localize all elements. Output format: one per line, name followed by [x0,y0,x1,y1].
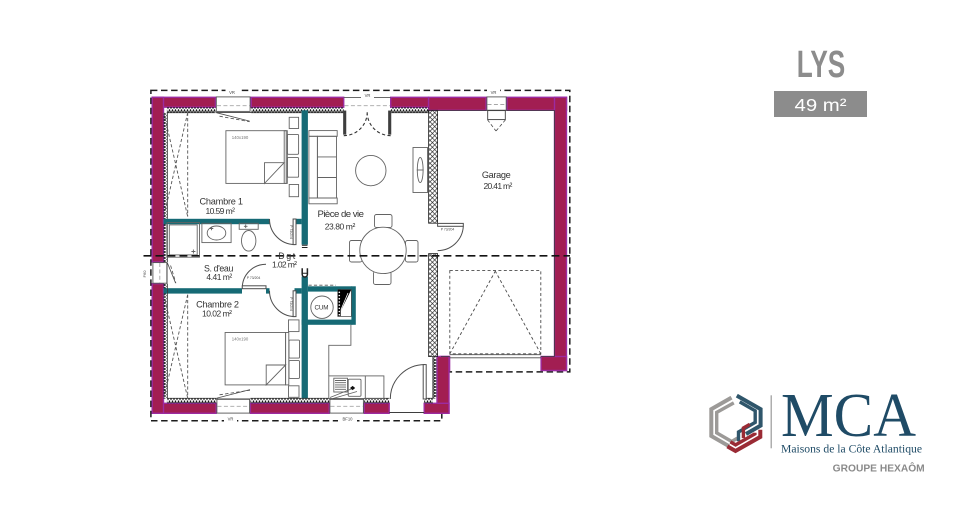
svg-text:MCA: MCA [781,382,916,450]
svg-text:1.02 m²: 1.02 m² [272,260,297,270]
svg-text:VR: VR [491,90,497,95]
svg-text:P 73/204: P 73/204 [289,297,293,311]
svg-text:140x190: 140x190 [232,135,249,140]
svg-text:10.02 m²: 10.02 m² [202,309,232,319]
svg-text:P 73/204: P 73/204 [289,225,293,239]
svg-text:BF10: BF10 [342,417,353,422]
svg-text:VR: VR [228,417,234,422]
svg-text:20.41 m²: 20.41 m² [484,181,513,191]
svg-text:23.80 m²: 23.80 m² [325,222,356,232]
svg-text:P 73/204: P 73/204 [247,276,261,280]
svg-text:CUM: CUM [315,305,329,312]
svg-text:4.41 m²: 4.41 m² [206,272,232,282]
svg-text:GROUPE HEXAÔM: GROUPE HEXAÔM [833,462,925,475]
svg-text:10.59 m²: 10.59 m² [205,206,235,216]
svg-text:VR: VR [229,90,235,95]
svg-text:140x190: 140x190 [232,337,249,342]
svg-text:Pièce de vie: Pièce de vie [317,209,364,220]
svg-text:F60: F60 [142,270,147,278]
svg-text:Maisons de la Côte Atlantique: Maisons de la Côte Atlantique [781,442,922,456]
svg-text:Garage: Garage [482,170,511,180]
svg-text:VR: VR [365,93,371,98]
svg-text:49 m²: 49 m² [795,95,847,115]
svg-text:P 73/204: P 73/204 [441,228,455,232]
svg-text:Chambre 1: Chambre 1 [200,197,243,207]
svg-text:LYS: LYS [797,44,846,86]
